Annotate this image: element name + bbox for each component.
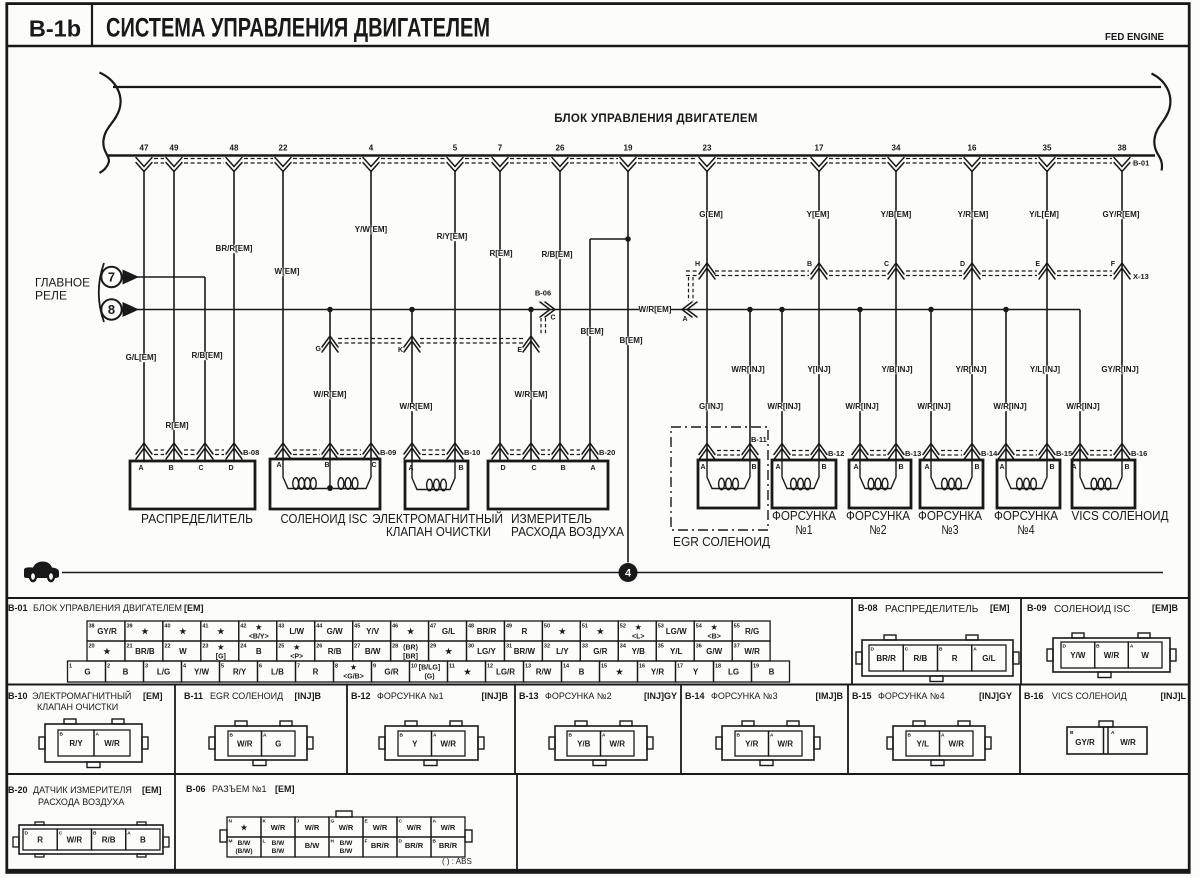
svg-text:B: B [579,668,585,677]
svg-text:B-15: B-15 [852,691,872,701]
svg-text:4: 4 [625,568,632,580]
svg-text:A: A [924,464,929,471]
svg-text:(BR): (BR) [403,645,418,652]
svg-text:16: 16 [639,664,645,670]
svg-text:B: B [737,733,741,739]
svg-text:A: A [433,819,437,825]
svg-text:13: 13 [525,664,531,670]
svg-text:15: 15 [601,664,607,670]
svg-text:G/W: G/W [706,647,722,656]
svg-text:1: 1 [69,664,72,670]
svg-text:B-20: B-20 [8,785,28,795]
svg-text:W: W [179,647,187,656]
svg-text:17: 17 [815,144,824,153]
svg-text:54: 54 [696,624,703,630]
svg-text:B: B [1049,464,1054,471]
svg-text:LG/W: LG/W [666,627,687,636]
svg-text:W/R: W/R [67,836,83,845]
svg-text:B: B [807,261,812,268]
svg-text:B-16: B-16 [1024,691,1044,701]
svg-text:B-08: B-08 [243,448,259,457]
svg-text:G[INJ]: G[INJ] [699,402,723,411]
svg-text:B-01: B-01 [8,603,28,613]
svg-text:38: 38 [1118,144,1127,153]
svg-text:G/R: G/R [384,668,398,677]
svg-text:14: 14 [563,664,570,670]
svg-text:РАСПРЕДЕЛИТЕЛЬ: РАСПРЕДЕЛИТЕЛЬ [885,604,979,615]
svg-text:R/Y: R/Y [69,739,83,748]
svg-text:47: 47 [140,144,149,153]
svg-text:<B>: <B> [708,634,721,641]
svg-text:B: B [458,465,463,472]
svg-text:[EM]: [EM] [275,784,295,794]
svg-text:50: 50 [544,624,550,630]
svg-text:D: D [25,831,29,837]
svg-text:B: B [751,464,756,471]
svg-text:B: B [898,464,903,471]
svg-text:W/R[INJ]: W/R[INJ] [917,402,951,411]
svg-text:39: 39 [126,624,132,630]
svg-text:A: A [433,733,437,739]
svg-text:ДАТЧИК ИЗМЕРИТЕЛЯ: ДАТЧИК ИЗМЕРИТЕЛЯ [33,785,132,795]
svg-text:8: 8 [335,664,338,670]
svg-text:GY/R[EM]: GY/R[EM] [1103,210,1140,219]
svg-text:C: C [550,315,555,322]
svg-text:B-13: B-13 [905,449,921,458]
svg-text:B: B [93,831,97,837]
svg-text:B-11: B-11 [751,435,767,444]
svg-text:СОЛЕНОИД ISC: СОЛЕНОИД ISC [281,511,368,526]
svg-text:G: G [84,668,90,677]
svg-text:B/W: B/W [340,840,354,847]
svg-text:BR/R[EM]: BR/R[EM] [216,244,253,253]
svg-text:A: A [770,733,774,739]
svg-text:26: 26 [316,644,322,650]
svg-text:B: B [769,668,775,677]
svg-text:BR/B: BR/B [135,647,155,656]
svg-text:Y/L[EM]: Y/L[EM] [1029,210,1059,219]
svg-text:G: G [331,819,335,825]
svg-text:G/L: G/L [982,654,995,663]
svg-text:<L>: <L> [632,634,644,641]
svg-text:38: 38 [89,624,95,630]
svg-text:B: B [939,647,943,653]
svg-text:W/R: W/R [305,823,320,832]
svg-text:5: 5 [453,144,458,153]
svg-text:РАЗЪЕМ №1: РАЗЪЕМ №1 [212,784,267,794]
svg-text:B: B [974,464,979,471]
svg-text:J: J [297,819,300,825]
svg-text:A: A [775,464,780,471]
svg-text:22: 22 [164,644,170,650]
svg-text:КЛАПАН ОЧИСТКИ: КЛАПАН ОЧИСТКИ [386,524,491,539]
svg-text:СИСТЕМА УПРАВЛЕНИЯ ДВИГАТЕЛЕМ: СИСТЕМА УПРАВЛЕНИЯ ДВИГАТЕЛЕМ [106,13,490,43]
svg-text:A: A [263,733,267,739]
svg-text:Y/R[INJ]: Y/R[INJ] [955,365,986,374]
svg-text:R/B[EM]: R/B[EM] [191,351,222,360]
svg-text:34: 34 [620,644,627,650]
svg-text:25: 25 [278,644,284,650]
svg-text:41: 41 [202,624,208,630]
svg-text:W/R[EM]: W/R[EM] [639,305,672,314]
svg-text:W/R[INJ]: W/R[INJ] [993,402,1027,411]
svg-text:B: B [230,733,234,739]
svg-text:B: B [60,732,64,738]
svg-text:R: R [522,627,528,636]
svg-text:★: ★ [256,624,263,632]
svg-text:B: B [1070,730,1074,736]
svg-text:№2: №2 [870,522,887,537]
svg-text:A: A [1130,644,1134,650]
svg-text:LG/Y: LG/Y [477,647,496,656]
svg-text:B: B [168,465,173,472]
svg-text:B[EM]: B[EM] [580,327,603,336]
svg-text:C: C [59,831,63,837]
svg-text:L/G: L/G [157,668,170,677]
svg-text:44: 44 [316,624,323,630]
svg-text:40: 40 [164,624,170,630]
svg-text:Y/W: Y/W [194,668,210,677]
svg-text:34: 34 [892,144,901,153]
svg-text:★: ★ [464,668,472,677]
svg-text:18: 18 [715,664,721,670]
svg-text:A: A [941,733,945,739]
svg-text:D: D [1063,644,1067,650]
svg-text:BR/R: BR/R [405,841,424,850]
svg-text:BR/R: BR/R [371,841,390,850]
svg-text:[G]: [G] [216,654,226,661]
svg-text:9: 9 [373,664,376,670]
svg-text:A: A [1071,464,1076,471]
svg-text:★: ★ [616,668,624,677]
svg-text:48: 48 [468,624,474,630]
svg-text:D: D [960,261,965,268]
svg-text:LG/R: LG/R [496,668,515,677]
svg-text:[INJ]L: [INJ]L [1161,691,1187,701]
svg-text:РАСПРЕДЕЛИТЕЛЬ: РАСПРЕДЕЛИТЕЛЬ [141,511,253,526]
svg-text:L: L [263,839,266,845]
svg-text:★: ★ [635,624,642,632]
svg-text:B: B [400,733,404,739]
svg-text:Y/B: Y/B [632,647,646,656]
svg-text:A: A [96,732,100,738]
svg-text:★: ★ [141,627,149,636]
svg-text:№1: №1 [796,522,813,537]
svg-text:A: A [700,464,705,471]
svg-text:W/R: W/R [407,823,422,832]
svg-text:B/W: B/W [365,647,381,656]
svg-text:B-13: B-13 [519,691,539,701]
svg-text:2: 2 [107,664,110,670]
svg-text:W/R: W/R [271,823,286,832]
svg-text:H: H [695,261,700,268]
svg-text:5: 5 [221,664,224,670]
svg-text:3: 3 [145,664,148,670]
svg-text:ГЛАВНОЕ: ГЛАВНОЕ [35,276,90,290]
svg-text:W/R: W/R [1120,738,1136,747]
svg-text:29: 29 [430,644,436,650]
svg-text:GY/R: GY/R [1075,738,1095,747]
svg-text:K: K [263,819,267,825]
svg-text:Y/L: Y/L [917,740,930,749]
svg-text:ФОРСУНКА №3: ФОРСУНКА №3 [711,691,778,701]
svg-text:C: C [884,261,889,268]
svg-text:B-01: B-01 [1133,159,1149,168]
svg-text:Y/R[EM]: Y/R[EM] [958,210,989,219]
svg-text:M: M [229,839,233,845]
svg-text:B: B [908,733,912,739]
svg-text:X-13: X-13 [1133,272,1149,281]
svg-text:G/L[EM]: G/L[EM] [126,353,157,362]
svg-text:F: F [365,839,368,845]
svg-text:L/W: L/W [289,627,304,636]
svg-text:C: C [399,819,403,825]
svg-text:B-09: B-09 [380,448,396,457]
svg-text:EGR СОЛЕНОИД: EGR СОЛЕНОИД [673,534,770,549]
svg-text:49: 49 [170,144,179,153]
svg-text:Y/B[EM]: Y/B[EM] [881,210,912,219]
svg-text:GY/R[INJ]: GY/R[INJ] [1101,365,1139,374]
svg-text:30: 30 [468,644,474,650]
svg-text:★: ★ [711,624,718,632]
svg-text:B: B [324,462,329,469]
svg-text:B/W: B/W [305,841,321,850]
svg-text:B-12: B-12 [828,449,844,458]
svg-text:РАСХОДА ВОЗДУХА: РАСХОДА ВОЗДУХА [38,797,124,807]
svg-text:W/R: W/R [104,739,120,748]
svg-text:W/R: W/R [744,647,760,656]
svg-text:VICS СОЛЕНОИД: VICS СОЛЕНОИД [1072,508,1169,523]
svg-text:R/B[EM]: R/B[EM] [541,250,572,259]
svg-text:W/R[EM]: W/R[EM] [314,390,347,399]
svg-text:[EM]: [EM] [990,603,1010,613]
svg-text:W/R: W/R [373,823,388,832]
svg-text:R[EM]: R[EM] [165,421,188,430]
svg-text:A: A [127,831,131,837]
svg-text:W/R: W/R [440,740,456,749]
svg-text:7: 7 [498,144,503,153]
svg-text:★: ★ [407,627,415,636]
svg-text:БЛОК УПРАВЛЕНИЯ ДВИГАТЕЛЕМ: БЛОК УПРАВЛЕНИЯ ДВИГАТЕЛЕМ [554,113,758,125]
svg-text:(B/W): (B/W) [236,848,253,855]
svg-text:[EM]: [EM] [184,603,204,613]
svg-text:48: 48 [230,144,239,153]
svg-text:27: 27 [354,644,360,650]
svg-text:[EM]: [EM] [142,785,162,795]
svg-text:<P>: <P> [290,654,303,661]
svg-text:[INJ]B: [INJ]B [295,691,322,701]
svg-text:F: F [1111,261,1116,268]
svg-text:26: 26 [556,144,565,153]
svg-text:6: 6 [259,664,262,670]
svg-text:Y[EM]: Y[EM] [807,210,830,219]
svg-text:W/R: W/R [339,823,354,832]
svg-text:47: 47 [430,624,436,630]
svg-text:B[EM]: B[EM] [619,336,642,345]
svg-text:B/W: B/W [238,840,252,847]
svg-text:B/W: B/W [340,848,354,855]
svg-text:55: 55 [734,624,740,630]
svg-text:B-10: B-10 [8,691,28,701]
svg-text:W/R: W/R [777,740,793,749]
svg-text:★: ★ [218,644,225,652]
svg-text:W/R: W/R [609,740,625,749]
svg-text:R: R [37,836,43,845]
svg-text:W/R: W/R [1104,651,1120,660]
svg-text:D: D [228,465,233,472]
svg-text:КЛАПАН ОЧИСТКИ: КЛАПАН ОЧИСТКИ [37,702,118,712]
svg-text:VICS СОЛЕНОИД: VICS СОЛЕНОИД [1052,691,1127,701]
svg-text:K: K [398,347,403,354]
svg-text:20: 20 [89,644,95,650]
svg-text:R[EM]: R[EM] [489,249,512,258]
svg-text:[BR]: [BR] [403,654,418,661]
svg-text:43: 43 [278,624,284,630]
svg-text:★: ★ [103,647,111,656]
svg-text:A: A [590,465,595,472]
svg-text:W/R[INJ]: W/R[INJ] [767,402,801,411]
svg-text:ФОРСУНКА №1: ФОРСУНКА №1 [377,691,444,701]
svg-text:R/Y: R/Y [233,668,247,677]
svg-text:BR/R: BR/R [477,627,497,636]
svg-text:R/G: R/G [745,627,759,636]
svg-text:★: ★ [559,627,567,636]
svg-text:Y/B[INJ]: Y/B[INJ] [881,365,912,374]
svg-text:G/W: G/W [327,627,343,636]
svg-text:B-10: B-10 [464,448,480,457]
svg-text:РЕЛЕ: РЕЛЕ [35,289,67,303]
svg-text:B: B [569,733,573,739]
svg-text:W[EM]: W[EM] [275,267,300,276]
svg-text:B: B [140,836,146,845]
svg-text:[INJ]GY: [INJ]GY [979,691,1012,701]
svg-text:[B/LG]: [B/LG] [419,665,440,672]
svg-text:36: 36 [696,644,702,650]
svg-text:16: 16 [968,144,977,153]
svg-text:R/B: R/B [328,647,342,656]
svg-text:ЭЛЕКТРОМАГНИТНЫЙ: ЭЛЕКТРОМАГНИТНЫЙ [32,690,131,701]
svg-text:GY/R: GY/R [97,627,117,636]
svg-text:B: B [560,465,565,472]
svg-text:[IMJ]B: [IMJ]B [816,691,844,701]
svg-text:B/W: B/W [272,848,286,855]
svg-text:A: A [602,733,606,739]
svg-text:<B/Y>: <B/Y> [249,634,269,641]
svg-text:7: 7 [108,270,115,285]
svg-text:12: 12 [487,664,493,670]
svg-text:BR/W: BR/W [514,647,536,656]
svg-text:C: C [198,465,203,472]
svg-text:Y/R: Y/R [651,668,665,677]
svg-text:R/W: R/W [536,668,552,677]
svg-text:A: A [1111,730,1115,736]
svg-text:G[EM]: G[EM] [699,210,723,219]
svg-text:B: B [433,839,437,845]
svg-text:D: D [871,647,875,653]
svg-text:[EM]B: [EM]B [1152,603,1178,613]
svg-text:B-1b: B-1b [29,16,81,42]
svg-text:G/L: G/L [442,627,455,636]
svg-text:19: 19 [624,144,633,153]
svg-text:52: 52 [620,624,626,630]
svg-text:A: A [276,462,281,469]
svg-text:W/R[INJ]: W/R[INJ] [845,402,879,411]
svg-text:7: 7 [297,664,300,670]
svg-text:B-08: B-08 [858,603,878,613]
svg-text:Y/L: Y/L [670,647,683,656]
svg-text:R/B: R/B [913,654,927,663]
svg-text:Y: Y [412,740,418,749]
svg-text:ФОРСУНКА: ФОРСУНКА [918,508,982,523]
svg-text:[INJ]B: [INJ]B [482,691,509,701]
svg-text:B-20: B-20 [599,448,615,457]
svg-text:G: G [275,740,281,749]
svg-text:W/R[EM]: W/R[EM] [400,402,433,411]
svg-text:D: D [399,839,403,845]
svg-text:B/W: B/W [272,840,286,847]
svg-text:BR/R: BR/R [876,654,896,663]
svg-text:B: B [123,668,129,677]
svg-text:( ) : ABS: ( ) : ABS [442,857,472,866]
svg-text:Y/V: Y/V [366,627,380,636]
svg-text:LG: LG [728,668,739,677]
svg-text:A: A [138,465,143,472]
svg-text:Y[INJ]: Y[INJ] [807,365,830,374]
svg-text:C: C [531,465,536,472]
svg-text:C: C [371,462,376,469]
svg-text:B-14: B-14 [685,691,705,701]
svg-text:49: 49 [506,624,512,630]
svg-text:ФОРСУНКА №2: ФОРСУНКА №2 [545,691,612,701]
svg-text:E: E [517,347,522,354]
svg-text:B-09: B-09 [1027,603,1047,613]
svg-text:ФОРСУНКА: ФОРСУНКА [846,508,910,523]
svg-text:B: B [1096,644,1100,650]
svg-text:Y/L[INJ]: Y/L[INJ] [1030,365,1061,374]
svg-text:31: 31 [506,644,512,650]
svg-text:A: A [408,465,413,472]
svg-text:E: E [1035,261,1040,268]
svg-text:23: 23 [202,644,208,650]
svg-text:B-12: B-12 [351,691,371,701]
svg-text:19: 19 [753,664,759,670]
svg-text:W/R[INJ]: W/R[INJ] [731,365,765,374]
svg-text:A: A [973,647,977,653]
svg-text:Y/B: Y/B [577,740,591,749]
svg-text:G/R: G/R [593,647,607,656]
svg-text:R: R [952,654,958,663]
svg-text:L/B: L/B [271,668,284,677]
svg-text:51: 51 [582,624,588,630]
svg-text:<G/B>: <G/B> [343,674,364,681]
svg-text:D: D [500,465,505,472]
svg-text:R/Y[EM]: R/Y[EM] [437,232,468,241]
svg-text:BR/R: BR/R [439,841,458,850]
svg-text:B-14: B-14 [981,449,998,458]
svg-text:СОЛЕНОИД ISC: СОЛЕНОИД ISC [1054,604,1130,615]
svg-text:33: 33 [582,644,588,650]
svg-text:B: B [256,647,262,656]
svg-text:★: ★ [350,664,357,672]
svg-text:B: B [1124,464,1129,471]
svg-text:21: 21 [126,644,132,650]
svg-text:32: 32 [544,644,550,650]
svg-text:G: G [316,346,322,353]
svg-text:W/R[EM]: W/R[EM] [515,390,548,399]
svg-text:B-16: B-16 [1131,449,1147,458]
svg-text:23: 23 [703,144,712,153]
svg-text:B-06: B-06 [186,784,206,794]
